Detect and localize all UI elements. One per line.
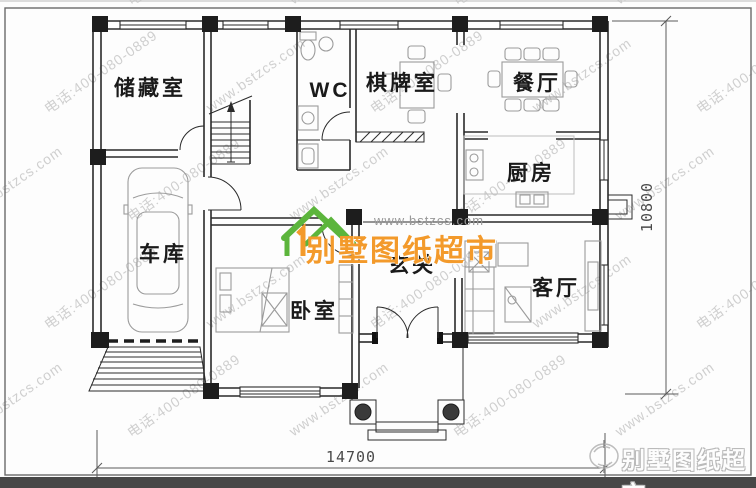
- label-dining: 餐厅: [513, 71, 561, 95]
- label-storage: 储藏室: [114, 76, 186, 100]
- dimension-width: 14700: [326, 448, 376, 466]
- garage-door-and-ramp: [89, 341, 207, 391]
- stairs: [209, 96, 252, 164]
- dimension-height: 10800: [638, 182, 656, 232]
- floorplan-drawing: 10800 14700 储藏室 WC 棋牌室 餐厅 厨房 车库 卧室 玄关 客厅: [0, 0, 756, 488]
- entrance-double-door: [372, 307, 443, 344]
- label-kitchen: 厨房: [507, 161, 555, 185]
- label-bedroom: 卧室: [290, 299, 338, 323]
- label-living: 客厅: [532, 276, 580, 300]
- label-foyer: 玄关: [388, 253, 436, 277]
- label-chess: 棋牌室: [366, 71, 438, 95]
- label-wc: WC: [310, 79, 351, 102]
- label-garage: 车库: [139, 242, 187, 266]
- room-labels: 储藏室 WC 棋牌室 餐厅 厨房 车库 卧室 玄关 客厅: [114, 71, 580, 323]
- floorplan-image: www.bstzcs.com电话:400-080-0889www.bstzcs.…: [0, 0, 756, 488]
- porch-and-steps: [350, 347, 464, 440]
